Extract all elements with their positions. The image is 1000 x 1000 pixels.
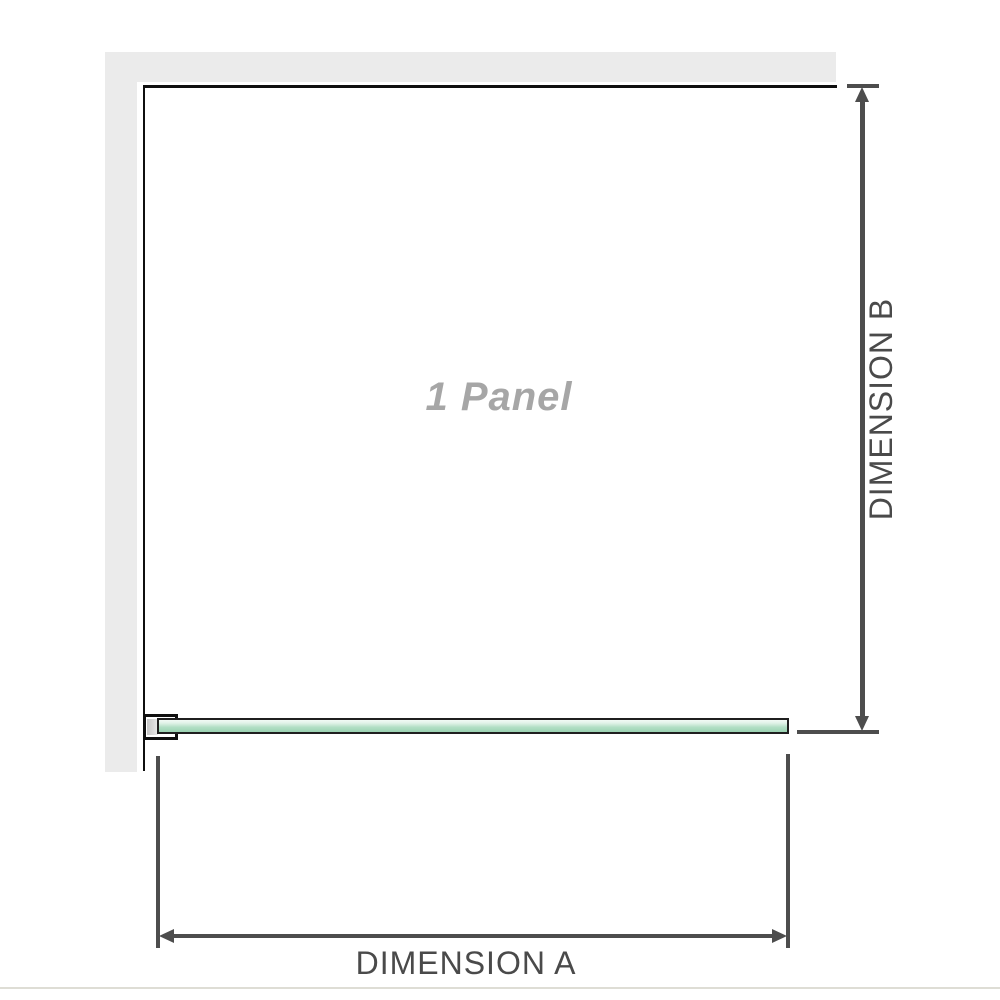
- dim-a-arrowhead-right-icon: [772, 929, 787, 943]
- dimension-b-label: DIMENSION B: [863, 289, 899, 529]
- dim-b-arrowhead-top-icon: [855, 87, 869, 102]
- dim-a-extension-right: [786, 754, 790, 948]
- page-bottom-rule: [0, 987, 1000, 989]
- wall-top-bar: [105, 52, 836, 82]
- dim-a-extension-left: [156, 756, 160, 948]
- dimension-a-label: DIMENSION A: [346, 946, 586, 980]
- dim-a-line: [168, 934, 778, 939]
- dim-a-arrowhead-left-icon: [159, 929, 174, 943]
- panel-left-edge: [143, 85, 146, 771]
- wall-left-bar: [105, 52, 137, 772]
- dimension-diagram: 1 Panel DIMENSION B DIMENSION A: [0, 0, 1000, 1000]
- panel-top-edge: [143, 85, 837, 88]
- dim-b-arrowhead-bottom-icon: [855, 716, 869, 731]
- panel-count-label: 1 Panel: [374, 371, 624, 423]
- glass-panel-bar: [157, 718, 789, 734]
